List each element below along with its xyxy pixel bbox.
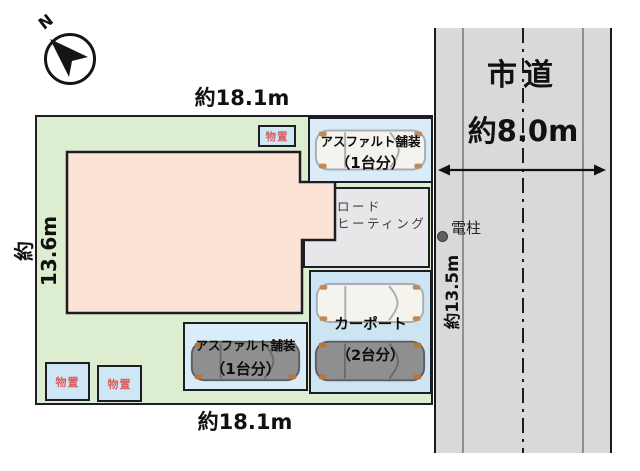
- carport-label-2: （2台分）: [311, 344, 430, 365]
- dimension-right: 約13.5m: [439, 250, 459, 334]
- road-width-arrow: [436, 159, 608, 181]
- asphalt-top-label-1: アスファルト舗装: [310, 131, 431, 150]
- carport-zone: カーポート （2台分）: [309, 270, 432, 394]
- carport-label-1: カーポート: [311, 313, 430, 334]
- asphalt-bottom-label-2: （1台分）: [185, 358, 306, 379]
- asphalt-bottom-label-1: アスファルト舗装: [185, 335, 306, 354]
- utility-pole-dot: [437, 231, 448, 242]
- utility-pole-label: 電柱: [451, 217, 481, 238]
- dimension-bottom: 約18.1m: [160, 406, 330, 436]
- storage-shed-bottom-left: 物置: [45, 362, 90, 401]
- asphalt-parking-top: アスファルト舗装 （1台分）: [308, 117, 433, 183]
- asphalt-top-label-2: （1台分）: [310, 152, 431, 173]
- road-name-label: 市道: [436, 50, 610, 94]
- asphalt-parking-bottom: アスファルト舗装 （1台分）: [183, 322, 308, 391]
- road-width-label: 約8.0m: [436, 108, 610, 150]
- road-heating-label: ロード ヒーティング: [305, 189, 428, 232]
- city-road: 市道 約8.0m: [434, 28, 612, 453]
- north-compass-icon: [41, 30, 99, 88]
- compass-north-label: N: [35, 4, 66, 34]
- dimension-left: 約13.6m: [8, 206, 32, 296]
- road-heating-zone: ロード ヒーティング: [303, 187, 430, 268]
- storage-shed-bottom-mid: 物置: [97, 365, 142, 402]
- site-plan-canvas: 市道 約8.0m ロード ヒーティング 物置 アスファルト舗: [0, 0, 640, 471]
- dimension-top: 約18.1m: [157, 82, 327, 112]
- storage-shed-top: 物置: [258, 125, 296, 147]
